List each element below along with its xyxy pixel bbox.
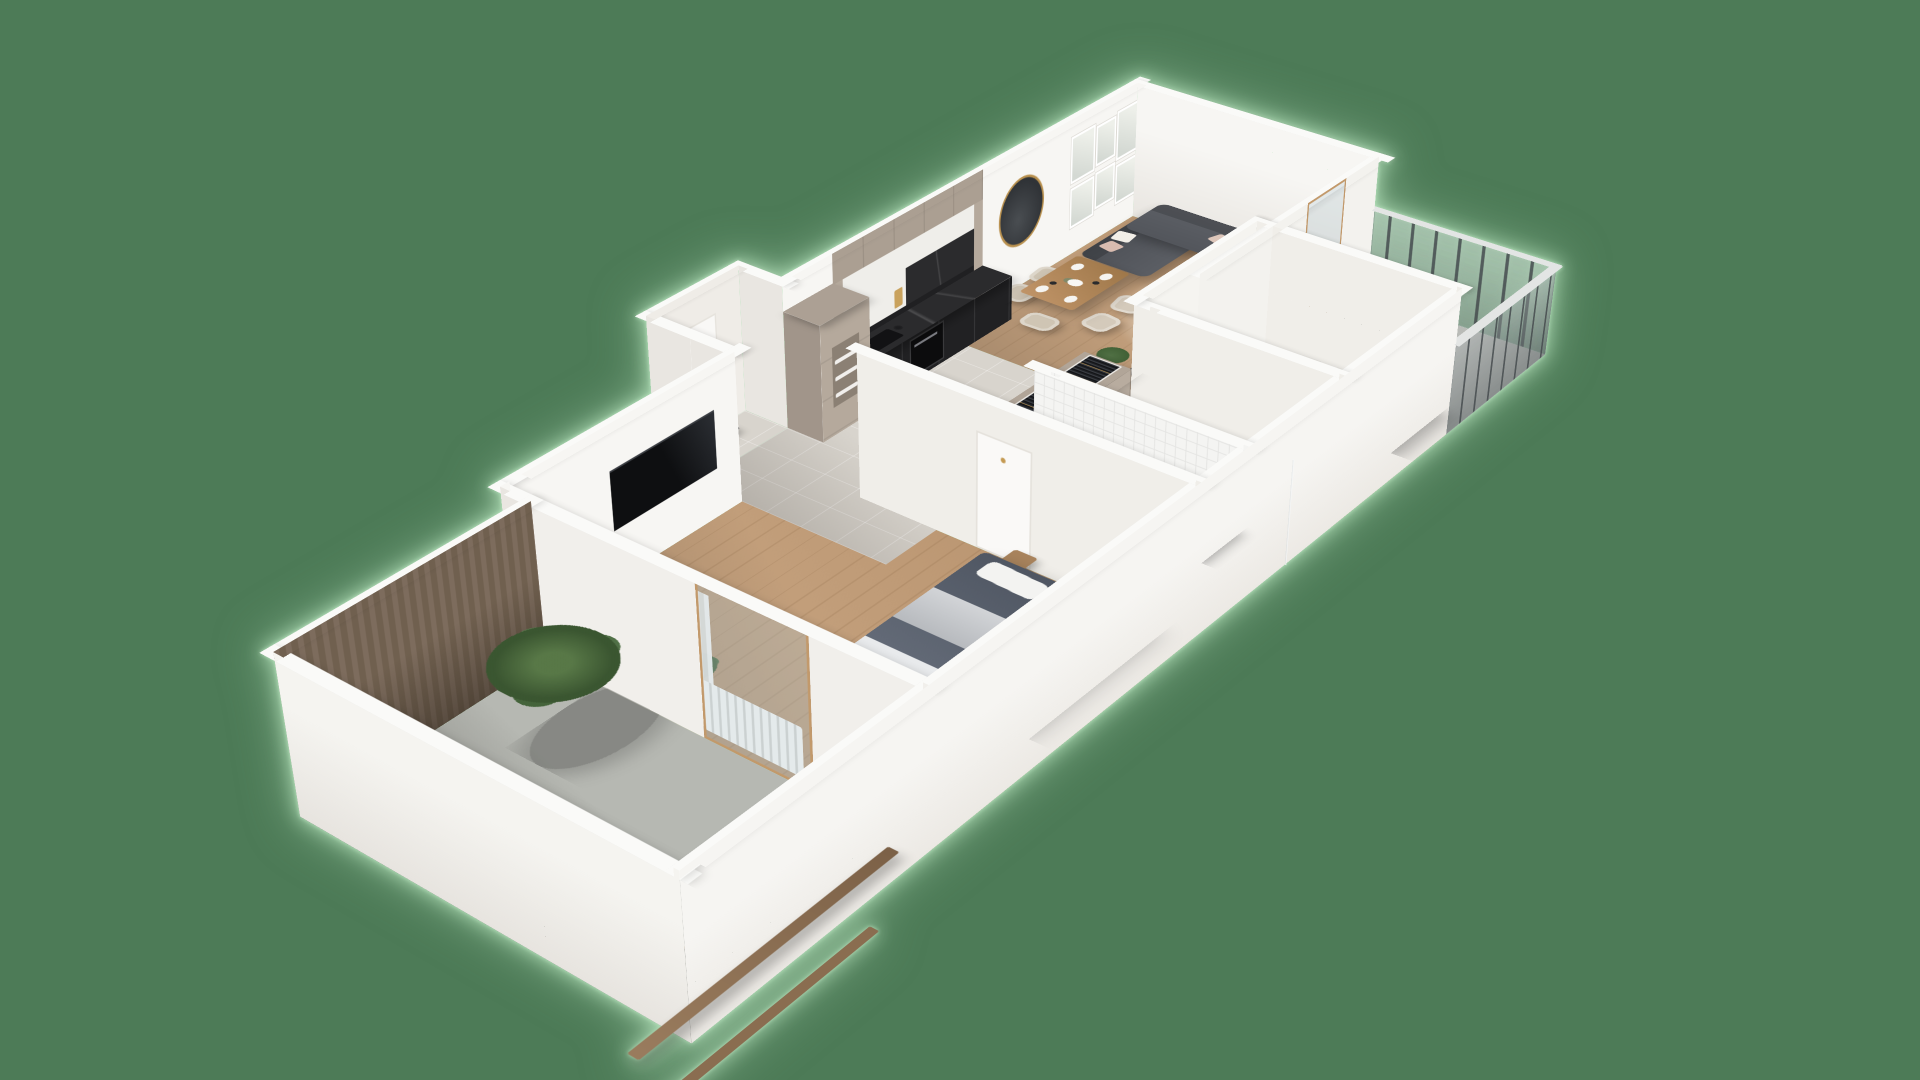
bathroom-lobby-door	[976, 430, 1033, 570]
door-handle	[1001, 457, 1006, 464]
kitchen-faucet	[894, 326, 902, 330]
place-setting	[1097, 272, 1116, 281]
apartment-cutout-halo	[0, 0, 1920, 1080]
apartment-3d-plan	[225, 216, 1545, 1044]
wall-tv	[609, 410, 717, 532]
coffee-cup	[1091, 281, 1101, 286]
coffee-cup	[1048, 281, 1058, 286]
tall-cabinet-side	[783, 312, 823, 443]
oven-handle	[914, 331, 937, 347]
render-stage	[0, 0, 1920, 1080]
place-setting	[1061, 295, 1080, 304]
gallery-frame	[1096, 115, 1117, 167]
table-vase	[1064, 278, 1085, 288]
dishes	[836, 381, 858, 399]
place-setting	[1033, 284, 1052, 293]
place-setting	[1068, 262, 1086, 271]
round-wall-mirror	[999, 164, 1045, 258]
gallery-frame	[1069, 175, 1094, 229]
gallery-frame	[1094, 162, 1115, 210]
cutting-boards	[894, 287, 902, 310]
dishes	[835, 364, 857, 381]
